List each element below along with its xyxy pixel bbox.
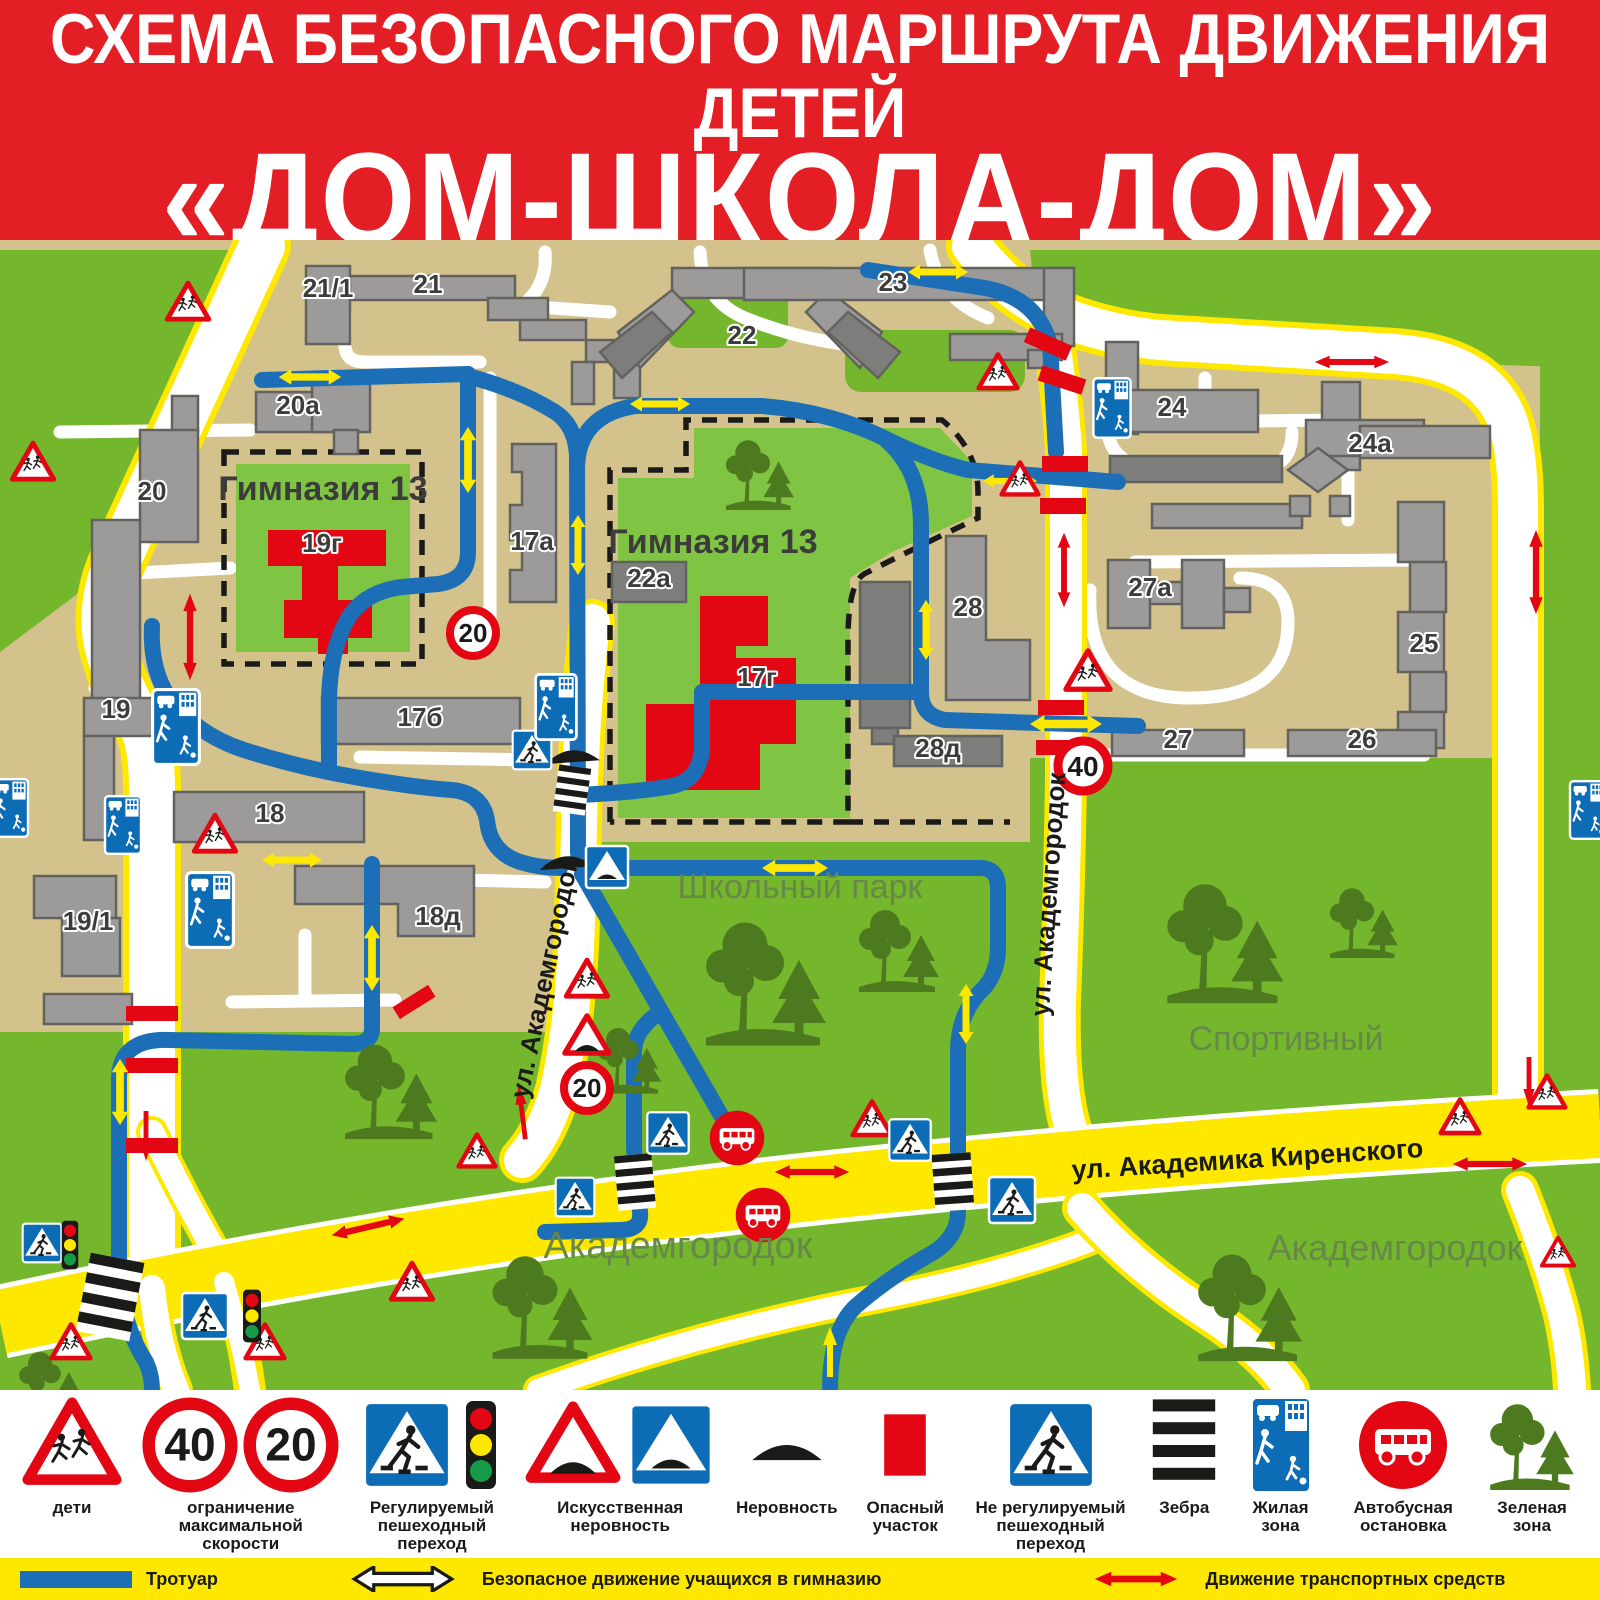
building-label: 24 (1158, 392, 1187, 422)
speed-bump-sign-icon (626, 1400, 716, 1490)
svg-text:20: 20 (266, 1418, 317, 1470)
legend-item-bus-stop: Автобусная остановка (1341, 1394, 1466, 1535)
road-bump-icon (748, 1425, 826, 1465)
speed-sign-value: 40 (1067, 751, 1098, 782)
legend-item-green-zone: Зеленая зона (1486, 1394, 1578, 1535)
legend-item-residential: Жилая зона (1241, 1394, 1321, 1535)
building-label: 17б (398, 702, 443, 732)
danger-zone-icon (882, 1412, 928, 1478)
building-label: 17а (510, 526, 554, 556)
building-label: 21/1 (303, 273, 354, 303)
building-label: 22а (627, 563, 671, 593)
title-banner: СХЕМА БЕЗОПАСНОГО МАРШРУТА ДВИЖЕНИЯ ДЕТЕ… (0, 0, 1600, 240)
building-label: 19/1 (63, 906, 114, 936)
building-label: 26 (1348, 724, 1377, 754)
residential-zone-icon (1248, 1395, 1314, 1495)
building-label: 28 (954, 592, 983, 622)
area-label: Академгородок (544, 1225, 813, 1267)
building-label: 23 (879, 267, 908, 297)
legend-item-bump: Неровность (736, 1394, 838, 1517)
title-line-2: «ДОМ-ШКОЛА-ДОМ» (0, 133, 1600, 240)
svg-text:40: 40 (165, 1418, 216, 1470)
building-label: 17г (737, 662, 777, 692)
legend-item-unregulated-crossing: Не регулируемый пешеходный переход (973, 1394, 1128, 1553)
legend-item-children: дети (22, 1394, 122, 1517)
strip-item-safe-route: Безопасное движение учащихся в гимназию (338, 1566, 882, 1592)
traffic-light-icon (459, 1397, 503, 1493)
strip-item-sidewalk: Тротуар (20, 1569, 218, 1590)
bus-stop-icon (1355, 1397, 1451, 1493)
speed-bump-warning-icon (525, 1399, 621, 1491)
traffic-arrow-icon (1081, 1568, 1191, 1590)
sidewalk-line-icon (20, 1571, 132, 1588)
building-label: 22 (728, 320, 757, 350)
legend-item-artificial-bump: Искусственная неровность (525, 1394, 716, 1535)
area-label: Спортивный (1189, 1020, 1384, 1058)
school-area-label: Гимназия 13 (218, 470, 427, 508)
building-label: 24а (1348, 428, 1392, 458)
strip-item-transport: Движение транспортных средств (1081, 1568, 1505, 1590)
legend-strip: Тротуар Безопасное движение учащихся в г… (0, 1558, 1600, 1600)
green-zone-icon (1486, 1396, 1578, 1494)
building-label: 18д (415, 901, 461, 931)
legend-item-danger: Опасный участок (858, 1394, 953, 1535)
building-label: 18 (256, 798, 285, 828)
speed-20-icon: 20 (243, 1397, 339, 1493)
building-label: 27 (1164, 724, 1193, 754)
legend: дети 40 20 ограничение максимальной скор… (0, 1390, 1600, 1558)
area-label: Школьный парк (678, 868, 924, 906)
speed-sign-value: 20 (573, 1073, 602, 1103)
building-label: 19 (102, 694, 131, 724)
building-label: 28д (915, 733, 961, 763)
building-label: 20 (138, 476, 167, 506)
speed-40-icon: 40 (142, 1397, 238, 1493)
children-sign-icon (22, 1395, 122, 1495)
area-label: Академгородок (1268, 1227, 1523, 1268)
building-label: 19г (302, 528, 342, 558)
speed-sign-value: 20 (459, 618, 488, 648)
school-area-label: Гимназия 13 (608, 523, 817, 561)
route-map: 20 40 20 Гимназия 13 Гимназия 13 21/1 21… (0, 240, 1600, 1390)
crosswalk-sign-icon (1004, 1398, 1098, 1492)
legend-item-zebra: Зебра (1148, 1394, 1220, 1517)
crosswalk-sign-icon (360, 1398, 454, 1492)
zebra-icon (1148, 1397, 1220, 1493)
legend-item-regulated-crossing: Регулируемый пешеходный переход (359, 1394, 504, 1553)
safe-route-arrow-icon (338, 1566, 468, 1592)
building-label: 21 (414, 269, 443, 299)
legend-item-speed-limit: 40 20 ограничение максимальной скорости (142, 1394, 339, 1553)
building-label: 20а (276, 390, 320, 420)
building-label: 27а (1128, 572, 1172, 602)
building-label: 25 (1410, 628, 1439, 658)
